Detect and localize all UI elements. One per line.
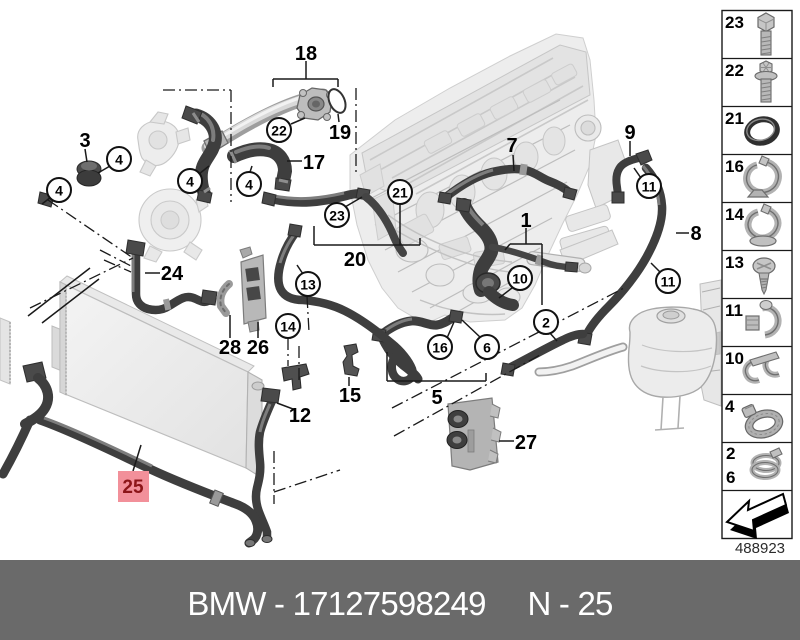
svg-text:22: 22 [271,123,287,139]
svg-text:7: 7 [506,135,517,157]
svg-text:10: 10 [512,271,528,287]
svg-text:13: 13 [725,253,744,272]
svg-text:4: 4 [245,177,253,193]
svg-text:16: 16 [725,157,744,176]
svg-text:12: 12 [289,405,311,427]
svg-text:21: 21 [392,185,408,201]
svg-text:22: 22 [725,61,744,80]
svg-text:19: 19 [329,122,351,144]
svg-text:23: 23 [329,208,345,224]
svg-text:28: 28 [219,337,241,359]
svg-text:1: 1 [520,210,531,232]
svg-text:17: 17 [303,152,325,174]
svg-text:13: 13 [300,277,316,293]
svg-text:27: 27 [515,432,537,454]
svg-text:BMW - 17127598249 N - 25: BMW - 17127598249 N - 25 [187,585,612,622]
svg-text:14: 14 [280,319,296,335]
svg-text:9: 9 [624,122,635,144]
svg-text:4: 4 [115,152,123,168]
svg-text:23: 23 [725,13,744,32]
svg-text:26: 26 [247,337,269,359]
svg-text:3: 3 [79,130,90,152]
svg-text:4: 4 [55,183,63,199]
svg-text:11: 11 [661,274,676,290]
svg-text:10: 10 [725,349,744,368]
svg-text:21: 21 [725,109,744,128]
svg-text:16: 16 [432,340,448,356]
svg-text:11: 11 [642,179,657,195]
svg-text:4: 4 [186,174,194,190]
svg-text:18: 18 [295,43,317,65]
svg-text:6: 6 [726,468,735,487]
svg-text:20: 20 [344,249,366,271]
svg-text:5: 5 [431,387,442,409]
svg-text:4: 4 [725,397,735,416]
svg-text:14: 14 [725,205,744,224]
svg-text:24: 24 [161,263,184,285]
svg-text:8: 8 [690,223,701,245]
svg-text:11: 11 [725,301,743,320]
svg-text:6: 6 [483,340,491,356]
svg-text:2: 2 [542,315,550,331]
svg-text:2: 2 [726,444,735,463]
svg-text:25: 25 [122,477,144,498]
svg-text:15: 15 [339,385,361,407]
svg-text:488923: 488923 [735,540,785,557]
